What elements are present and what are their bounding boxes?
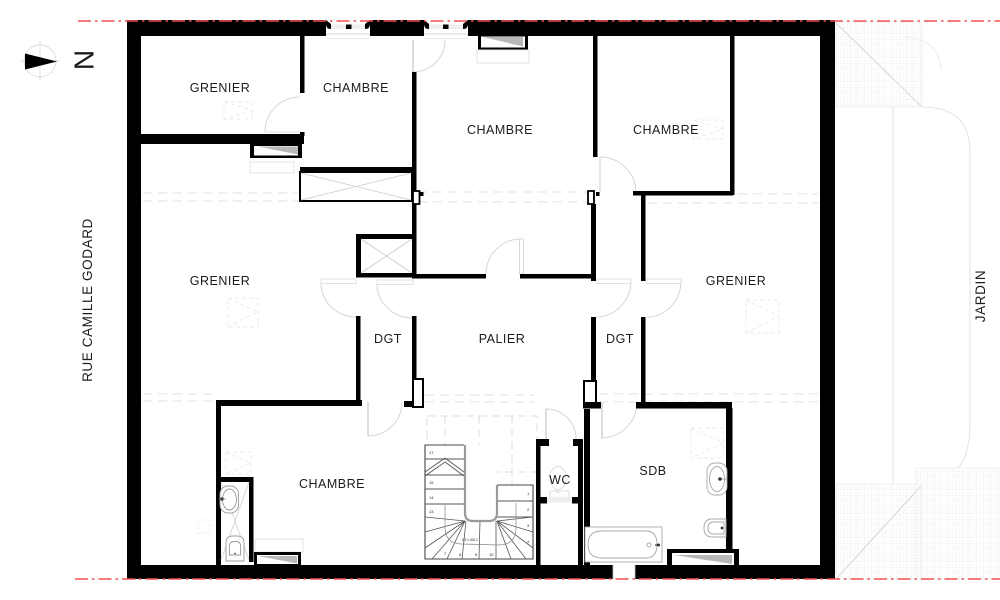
svg-text:DGT: DGT [606, 332, 634, 346]
svg-text:17: 17 [429, 450, 434, 455]
svg-text:13: 13 [429, 509, 434, 514]
svg-text:GRENIER: GRENIER [190, 274, 250, 288]
svg-text:GRENIER: GRENIER [706, 274, 766, 288]
svg-text:CHAMBRE: CHAMBRE [299, 477, 365, 491]
svg-text:WC: WC [549, 473, 571, 487]
svg-text:GRENIER: GRENIER [190, 81, 250, 95]
svg-text:DGT: DGT [374, 332, 402, 346]
svg-text:0.2 x 300.2: 0.2 x 300.2 [462, 538, 478, 542]
svg-text:10: 10 [489, 552, 494, 557]
svg-text:CHAMBRE: CHAMBRE [633, 123, 699, 137]
svg-text:PALIER: PALIER [479, 332, 526, 346]
svg-text:CHAMBRE: CHAMBRE [467, 123, 533, 137]
svg-text:SDB: SDB [639, 464, 666, 478]
svg-text:CHAMBRE: CHAMBRE [323, 81, 389, 95]
svg-text:RUE CAMILLE GODARD: RUE CAMILLE GODARD [80, 218, 95, 382]
svg-text:15: 15 [429, 480, 434, 485]
svg-text:14: 14 [429, 495, 434, 500]
svg-text:N: N [69, 50, 100, 70]
svg-text:JARDIN: JARDIN [973, 270, 988, 322]
